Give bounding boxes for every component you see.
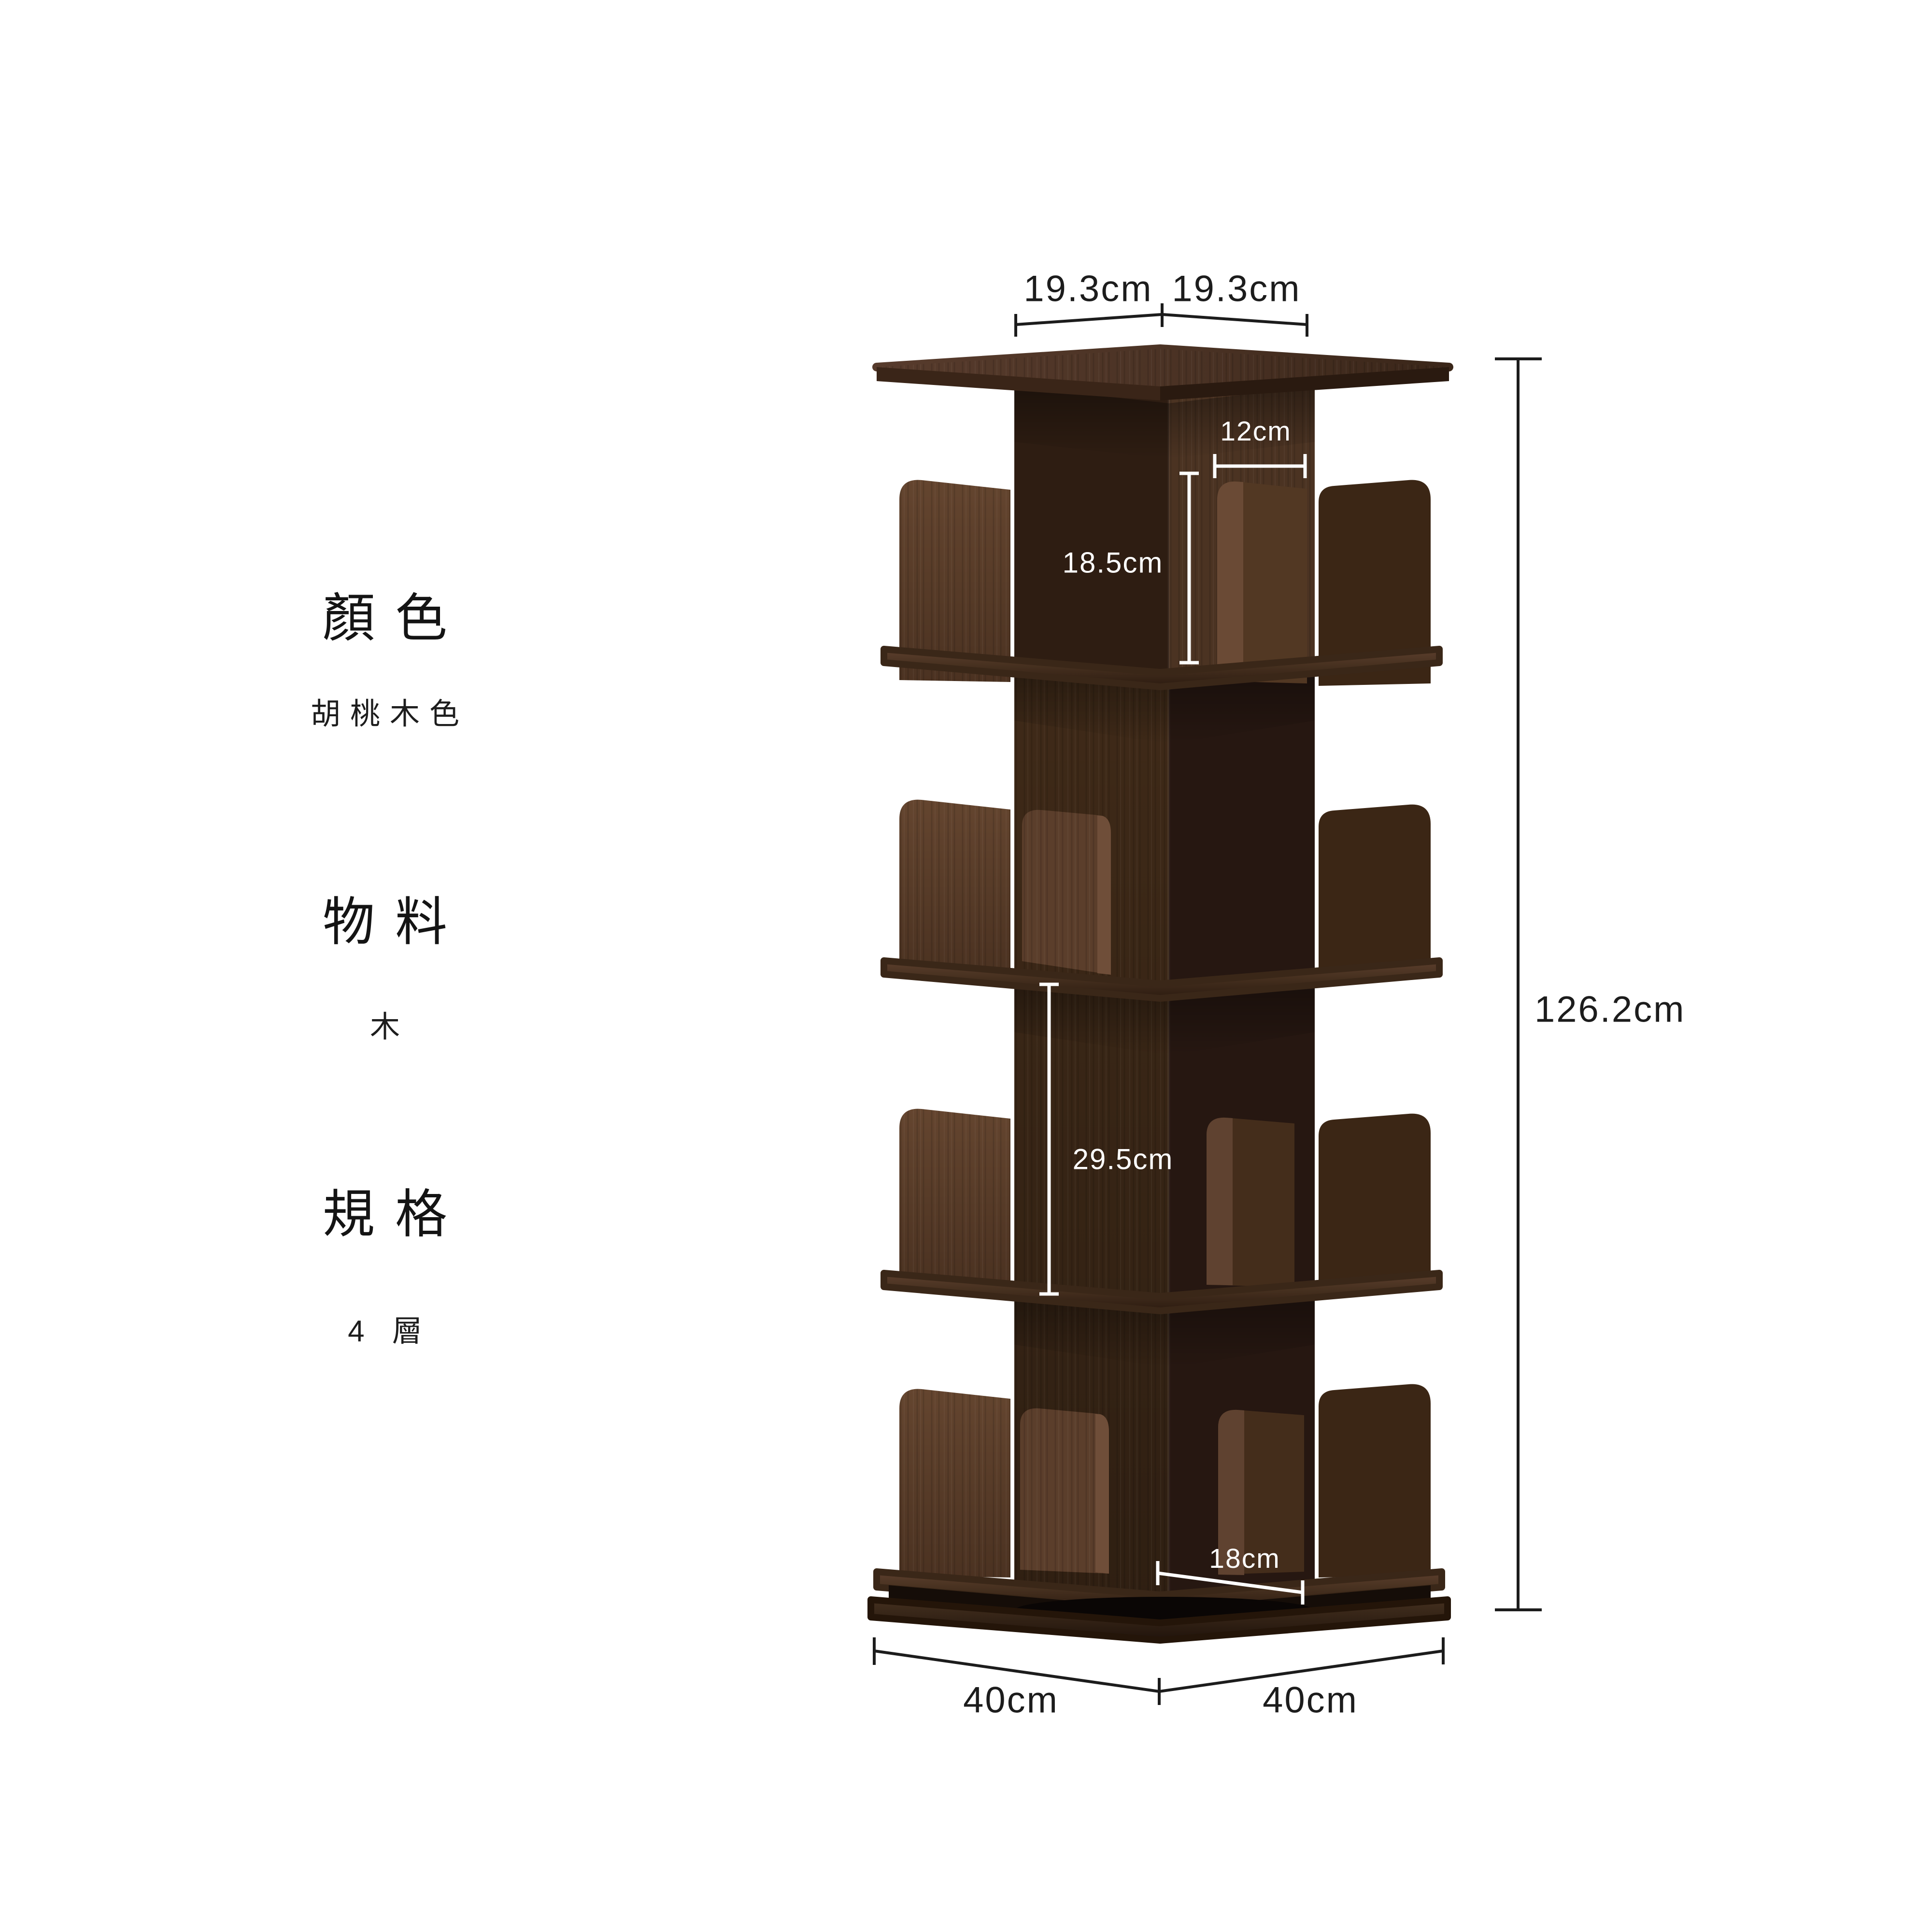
tier4-outer-right-panel (1319, 1384, 1431, 1577)
dim-label-top-width-right: 19.3cm (1172, 268, 1301, 310)
dim-label-base-width-left: 40cm (963, 1679, 1059, 1721)
dim-label-top-tier-height: 18.5cm (1063, 546, 1164, 580)
tier2-outer-right-panel (1319, 805, 1431, 973)
dim-label-base-width-right: 40cm (1263, 1679, 1358, 1721)
tier4-inner-left-edge (1095, 1414, 1109, 1574)
spec-label-size: 規格 (302, 1172, 468, 1248)
dim-label-lower-tier-height: 29.5cm (1073, 1143, 1174, 1176)
spec-value-size: 4 層 (338, 1307, 432, 1350)
dim-label-top-width-left: 19.3cm (1023, 268, 1152, 310)
spec-label-material: 物料 (302, 880, 468, 955)
spec-value-color: 胡桃木色 (301, 689, 469, 733)
tier3-inner-right-edge (1207, 1118, 1233, 1285)
bookshelf-dimension-diagram (0, 0, 1932, 1932)
dim-label-inner-bottom-width: 18cm (1209, 1543, 1280, 1575)
spec-label-color: 顏色 (302, 576, 468, 652)
tier2-inner-left-edge (1097, 815, 1111, 975)
dim-label-overall-height: 126.2cm (1534, 989, 1686, 1031)
dim-line-total-height (1495, 359, 1542, 1610)
tier1-inner-right-edge (1217, 482, 1243, 682)
tier3-outer-right-panel (1319, 1114, 1431, 1283)
dim-label-inner-top-width: 12cm (1220, 415, 1291, 447)
spec-value-material: 木 (360, 1002, 410, 1046)
